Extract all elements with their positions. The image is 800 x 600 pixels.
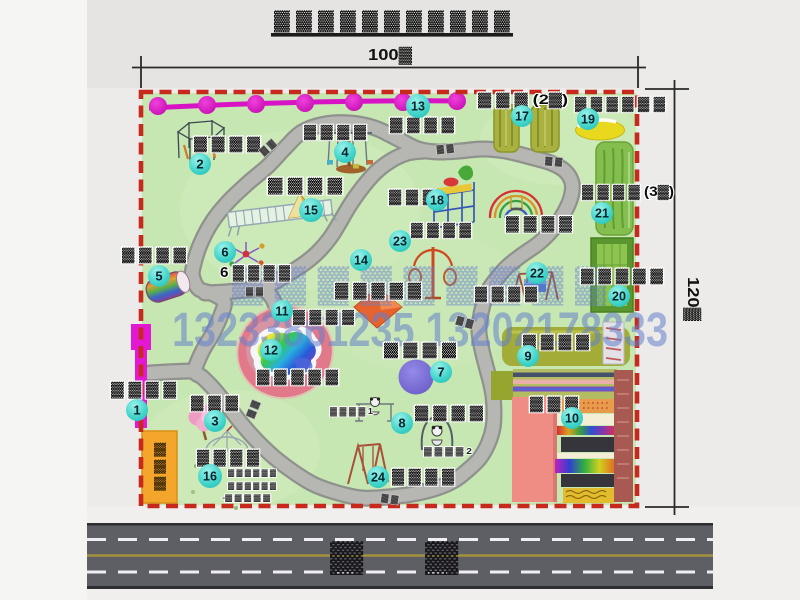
- svg-text:24: 24: [371, 471, 385, 485]
- svg-text:▓ ▓ ▓ ▓ ▓: ▓ ▓ ▓ ▓ ▓: [257, 368, 339, 386]
- svg-text:8: 8: [398, 416, 405, 431]
- svg-text:9: 9: [524, 349, 531, 364]
- svg-text:▓ ▓ ▓ ▓: ▓ ▓ ▓ ▓: [268, 177, 342, 195]
- svg-text:▓ ▓ ▓ ▓ ▓: ▓ ▓ ▓ ▓ ▓: [335, 282, 421, 300]
- svg-text:100▓: 100▓: [368, 46, 412, 65]
- svg-text:17: 17: [515, 110, 529, 124]
- svg-text:23: 23: [393, 235, 407, 249]
- svg-text:10: 10: [565, 412, 579, 426]
- svg-text:▓ ▓ ▓ ▓: ▓ ▓ ▓ ▓: [304, 124, 366, 140]
- svg-text:▓ ▓ ▓ ▓: ▓ ▓ ▓ ▓: [506, 215, 573, 233]
- svg-text:▓ ▓ ▓ ▓ ▓ ▓: ▓ ▓ ▓ ▓ ▓ ▓: [228, 482, 277, 490]
- svg-text:7: 7: [437, 365, 444, 380]
- svg-text:20: 20: [612, 290, 626, 304]
- svg-text:▓: ▓: [154, 476, 167, 491]
- svg-text:▓ ▓ ▓ ▓: ▓ ▓ ▓ ▓: [390, 116, 455, 134]
- svg-text:120▓: 120▓: [683, 277, 702, 321]
- svg-text:5: 5: [155, 269, 162, 284]
- svg-text:▓ ▓: ▓ ▓: [246, 287, 263, 297]
- svg-text:3: 3: [211, 414, 218, 429]
- svg-text:▓ ▓ ▓ ▓: ▓ ▓ ▓ ▓: [411, 222, 471, 238]
- svg-text:1: 1: [133, 403, 140, 418]
- svg-text:▓: ▓: [425, 540, 460, 576]
- svg-text:▓ ▓ ▓ ▓ ▓ ▓: ▓ ▓ ▓ ▓ ▓ ▓: [228, 469, 277, 477]
- svg-text:22: 22: [530, 267, 544, 281]
- svg-text:13: 13: [411, 100, 425, 114]
- svg-text:11: 11: [275, 305, 288, 319]
- svg-text:▓ ▓ ▓ ▓: ▓ ▓ ▓ ▓: [293, 309, 354, 325]
- svg-text:▓ ▓ ▓ ▓: ▓ ▓ ▓ ▓: [111, 381, 176, 399]
- svg-text:6 ▓ ▓ ▓ ▓: 6 ▓ ▓ ▓ ▓: [220, 264, 290, 282]
- svg-text:16: 16: [203, 470, 217, 484]
- svg-text:▓: ▓: [330, 540, 365, 576]
- svg-text:▓ ▓ ▓ ▓ 2: ▓ ▓ ▓ ▓ 2: [424, 446, 472, 457]
- svg-text:▓ ▓ ▓ ▓: ▓ ▓ ▓ ▓: [194, 135, 261, 153]
- svg-text:▓ ▓ ▓ ▓ 1: ▓ ▓ ▓ ▓ 1: [330, 406, 373, 417]
- svg-text:▓ ▓ ▓ ▓: ▓ ▓ ▓ ▓: [415, 404, 484, 422]
- svg-text:15: 15: [304, 204, 318, 218]
- svg-text:▓ ▓ ▓ ▓: ▓ ▓ ▓ ▓: [384, 341, 457, 359]
- svg-text:▓ ▓ ▓: ▓ ▓ ▓: [191, 394, 239, 412]
- svg-text:4: 4: [341, 145, 349, 160]
- svg-text:6: 6: [221, 245, 228, 260]
- svg-text:▓ ▓ ▓ ▓: ▓ ▓ ▓ ▓: [197, 449, 259, 467]
- svg-text:-▓ ▓ ▓ ▓ ▓: -▓ ▓ ▓ ▓ ▓: [222, 494, 271, 502]
- svg-text:▓ ▓ ▓ ▓ ▓: ▓ ▓ ▓ ▓ ▓: [581, 267, 664, 285]
- svg-text:12: 12: [264, 344, 278, 358]
- svg-text:2: 2: [196, 157, 203, 172]
- svg-text:18: 18: [430, 194, 444, 208]
- svg-text:▓: ▓: [154, 459, 167, 474]
- svg-text:14: 14: [354, 254, 368, 268]
- svg-text:19: 19: [581, 113, 595, 127]
- svg-text:21: 21: [595, 207, 609, 221]
- svg-text:▓ ▓ ▓ ▓: ▓ ▓ ▓ ▓: [475, 285, 538, 303]
- svg-text:▓ ▓ ▓ ▓ (3▓): ▓ ▓ ▓ ▓ (3▓): [582, 184, 674, 200]
- svg-text:▓ ▓ ▓ ▓ ▓ ▓ ▓ ▓ ▓ ▓ ▓: ▓ ▓ ▓ ▓ ▓ ▓ ▓ ▓ ▓ ▓ ▓: [274, 10, 511, 33]
- svg-text:▓ ▓ ▓ ▓: ▓ ▓ ▓ ▓: [392, 468, 454, 486]
- svg-text:▓ ▓ ▓ ▓: ▓ ▓ ▓ ▓: [122, 246, 187, 264]
- svg-text:▓: ▓: [154, 442, 167, 457]
